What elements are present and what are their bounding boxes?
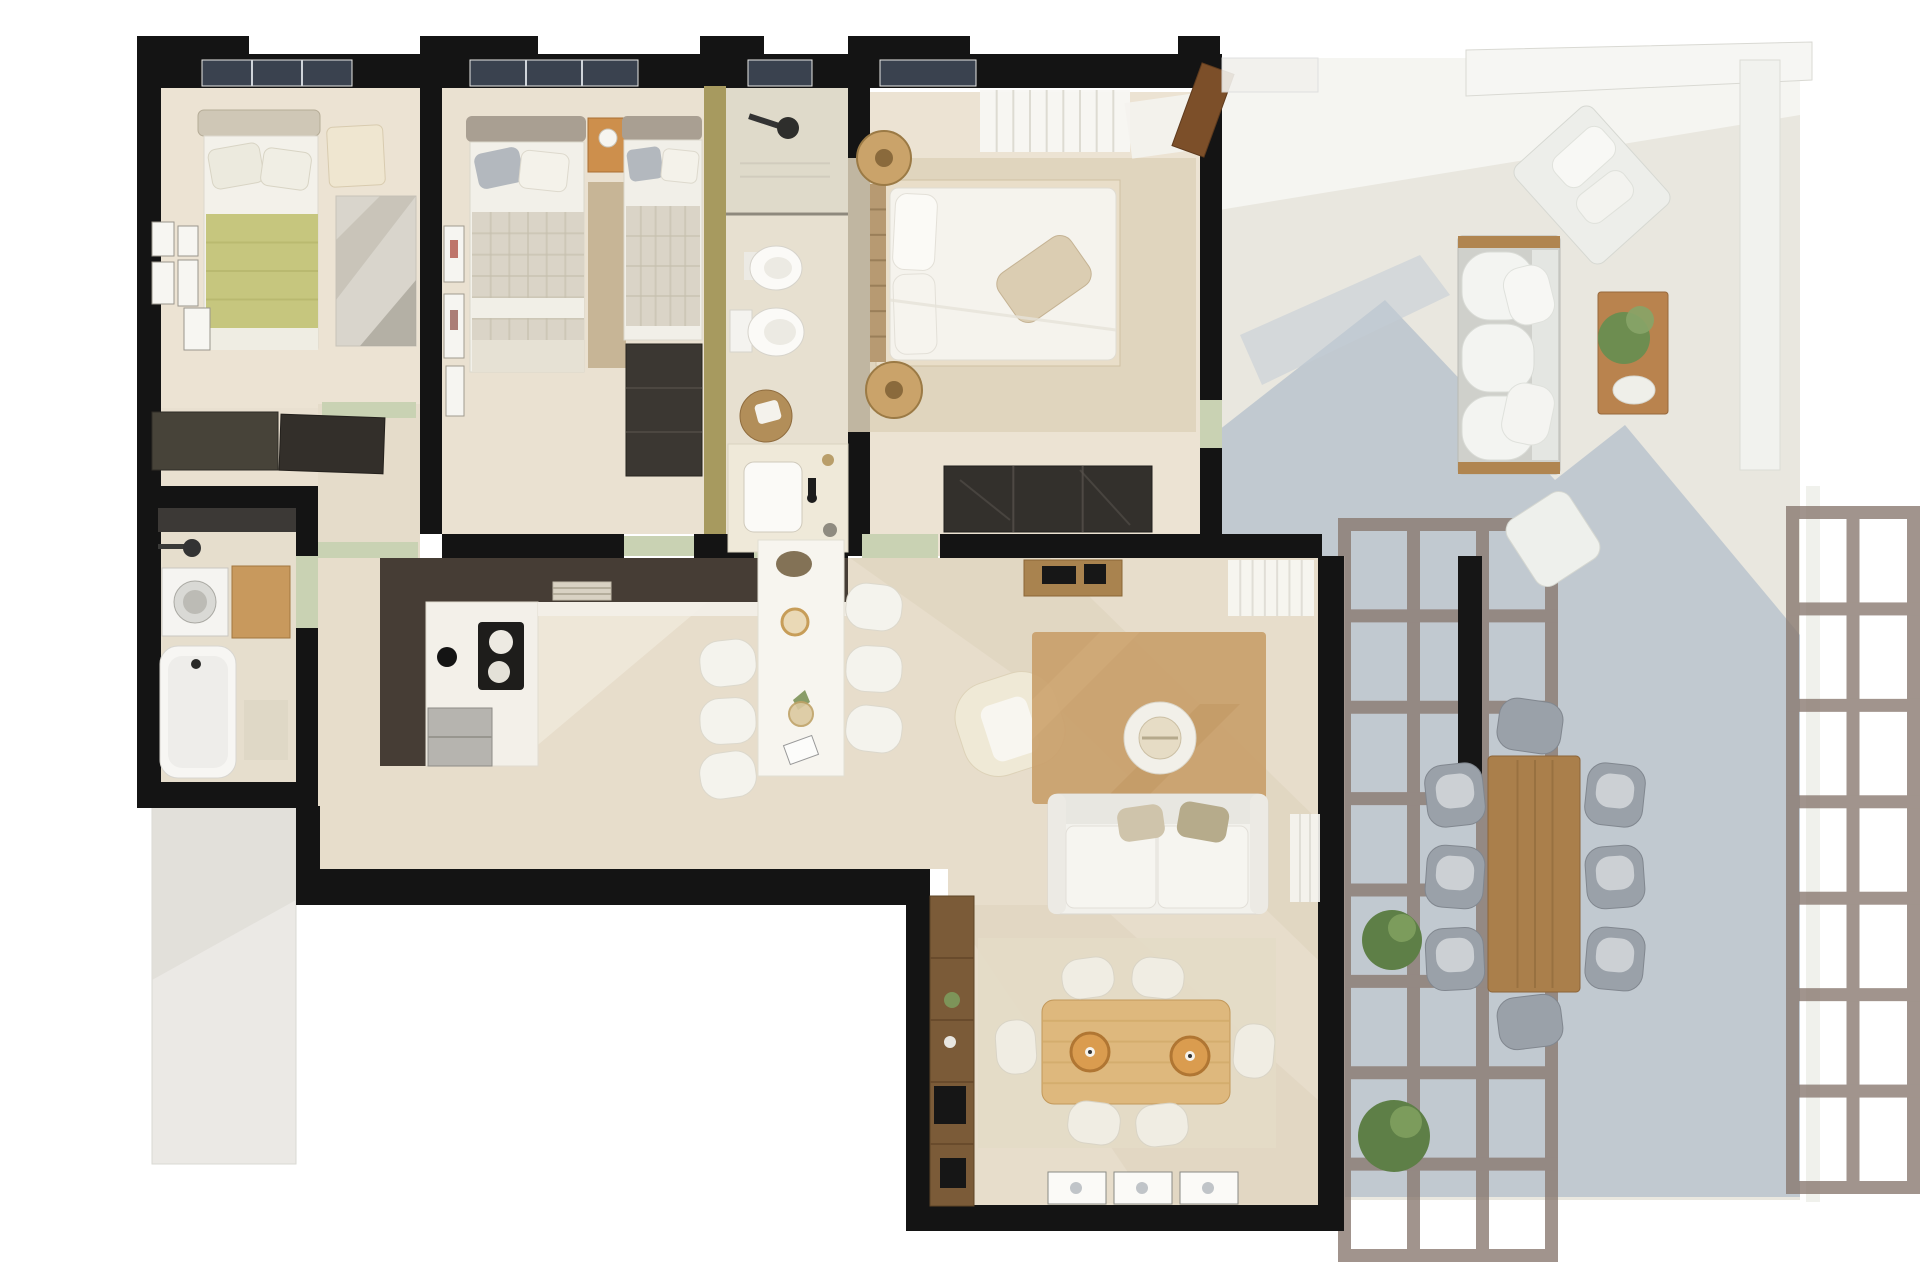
wall-frame	[178, 260, 198, 306]
cooktop-burner	[488, 661, 510, 683]
cabinet-vase	[944, 1036, 956, 1048]
shower-zone	[726, 88, 848, 212]
floor-plan-canvas	[0, 0, 1920, 1280]
vanity-item	[822, 454, 834, 466]
threshold-mat	[624, 536, 694, 556]
outdoor-dining-table-grain-line	[1517, 760, 1519, 988]
bed2-pillow-grey	[626, 146, 664, 182]
terrace-tray	[1613, 376, 1655, 404]
nightstand-lamp	[599, 129, 617, 147]
toilet-bowl-inner	[764, 319, 796, 345]
kitchen-bottom-wall	[296, 869, 930, 905]
master-headboard	[870, 184, 886, 362]
window	[880, 60, 976, 86]
pendant-bulb	[1088, 1050, 1092, 1054]
bed1-blanket-stripes-line	[206, 242, 318, 244]
shower-head	[777, 117, 799, 139]
bed2-wardrobe-shelves-line	[626, 431, 702, 433]
kitchen-top-wall	[442, 534, 624, 558]
console-item	[1084, 564, 1106, 584]
outdoor-chair-cushion	[1595, 936, 1636, 973]
pergola-grid-b-bar	[1786, 892, 1920, 905]
living-right-wall	[1318, 556, 1344, 1208]
dining-chair	[1134, 1101, 1190, 1148]
shower-tray-lines-line	[740, 162, 830, 164]
bed1-dresser	[152, 412, 278, 470]
shower-tray-lines-line	[740, 176, 830, 178]
utility-cabinet	[232, 566, 290, 638]
window	[470, 60, 638, 86]
bath2-tub-faucet	[191, 659, 201, 669]
cabinet-plant	[944, 992, 960, 1008]
bed1-bottom-wall	[137, 486, 318, 508]
island-chair	[699, 697, 757, 746]
outdoor-chair-cushion	[1435, 855, 1475, 892]
window	[748, 60, 812, 86]
bath2-lintel	[158, 508, 296, 532]
vent-grille-lines-line	[553, 587, 611, 589]
outdoor-chair-cushion	[1435, 937, 1475, 973]
bed1-bed2-wall	[420, 54, 442, 534]
master-curtain-folds-line	[1029, 90, 1031, 152]
poster-art	[450, 240, 458, 258]
threshold-mat	[296, 556, 318, 628]
master-headboard-slats-line	[870, 285, 886, 287]
pergola-grid-b-bar	[1786, 1181, 1920, 1194]
living-curtain-folds-line	[1264, 560, 1266, 616]
living-curtain-folds-line	[1288, 560, 1290, 616]
master-curtain-folds-line	[1079, 90, 1081, 152]
master-bedside-center	[875, 149, 893, 167]
living-curtain-folds-line	[1276, 560, 1278, 616]
master-curtain-folds-line	[1062, 90, 1064, 152]
bath2-shower-head	[183, 539, 201, 557]
window-mullions-line	[301, 60, 303, 86]
bed2-plaid-line	[472, 275, 584, 277]
master-headboard-slats-line	[870, 208, 886, 210]
living-curtain-folds-line	[1301, 560, 1303, 616]
dining-cabinet-shelves-line	[930, 957, 974, 959]
dining-cabinet-shelves-line	[930, 1081, 974, 1083]
bed1-blanket-stripes-line	[206, 270, 318, 272]
master-wardrobe	[944, 466, 1152, 532]
living-curtain-folds-line	[1309, 814, 1311, 902]
top-wall-tab	[700, 36, 764, 56]
hall-bath2-wall	[296, 508, 318, 808]
bath2-mat	[244, 700, 288, 760]
pergola-grid-b-bar	[1786, 1085, 1920, 1098]
top-wall-tab	[848, 36, 970, 56]
pergola-grid-b-bar	[1786, 506, 1920, 519]
master-curtain-folds-line	[1112, 90, 1114, 152]
bed1-blanket-stripes-line	[206, 299, 318, 301]
pergola-grid-b-bar	[1786, 699, 1920, 712]
bath2-tub-inner	[168, 656, 228, 768]
outdoor-sofa-cushion	[1462, 324, 1534, 392]
master-headboard-slats-line	[870, 310, 886, 312]
threshold-mat	[862, 534, 938, 558]
master-wardrobe-gaps-line	[1082, 466, 1084, 532]
sofa-pillow-beige	[1116, 803, 1166, 843]
wall-frame	[152, 222, 174, 256]
master-headboard-slats-line	[870, 234, 886, 236]
floor-plan-rendering	[0, 0, 1920, 1280]
threshold-mat	[1200, 400, 1222, 448]
island-plate	[789, 702, 813, 726]
window	[202, 60, 352, 86]
island-chair	[845, 645, 903, 694]
pendant-bulb	[1188, 1054, 1192, 1058]
terrace-shrub-highlight	[1390, 1106, 1422, 1138]
living-curtain-folds-line	[1299, 814, 1301, 902]
bathroom2-bottom-wall	[137, 782, 318, 808]
outdoor-dining-table-grain-line	[1552, 760, 1554, 988]
island-chair	[844, 581, 905, 633]
bidet-bowl	[764, 257, 792, 279]
bed2-right-headboard	[622, 116, 702, 140]
master-pillow	[892, 193, 938, 271]
outdoor-chair-cushion	[1595, 855, 1635, 892]
pergola-grid-a-bar	[1338, 1066, 1558, 1079]
top-wall-tab	[1178, 36, 1220, 56]
threshold-mat	[318, 542, 418, 558]
parapet-right-wall	[1740, 60, 1780, 470]
master-curtain-folds-line	[1012, 90, 1014, 152]
vanity-item	[823, 523, 837, 537]
bed2-wardrobe-shelves-line	[626, 387, 702, 389]
master-headboard-slats-line	[870, 259, 886, 261]
cooktop-burner	[489, 630, 513, 654]
bed1-headboard	[198, 110, 320, 136]
poster	[446, 366, 464, 416]
dining-chair	[994, 1019, 1038, 1076]
terrace-shrub-highlight	[1388, 914, 1416, 942]
bed2-plaid-line	[472, 254, 584, 256]
outdoor-sofa-wood-bottom	[1458, 462, 1560, 474]
bed2-plaid-line	[626, 295, 700, 297]
vanity-faucet-head	[807, 493, 817, 503]
bed1-foot	[206, 328, 318, 350]
dining-cabinet-shelves-line	[930, 1019, 974, 1021]
dining-table-grain-line	[1042, 1082, 1230, 1084]
dining-cabinet-shelves-line	[930, 1143, 974, 1145]
threshold-mat	[322, 402, 416, 418]
kitchen-sink	[437, 647, 457, 667]
master-curtain-folds-line	[996, 90, 998, 152]
cabinet-decor	[940, 1158, 966, 1188]
window-mullions-line	[251, 60, 253, 86]
master-bottom-wall	[940, 534, 1322, 558]
bed2-pillow-white	[518, 150, 570, 193]
bed2-bath1-olive-wall	[704, 86, 726, 556]
bed1-pillow	[207, 142, 265, 190]
living-curtain-folds-line	[1252, 560, 1254, 616]
bed2-plaid-line	[626, 265, 700, 267]
bed2-left-foot	[472, 340, 584, 372]
frame-sketch	[1136, 1182, 1148, 1194]
poster-art	[450, 310, 458, 330]
master-curtain	[980, 90, 1130, 152]
outdoor-chair	[1495, 992, 1565, 1051]
cabinet-decor	[934, 1086, 966, 1124]
outdoor-sofa-wood-top	[1458, 236, 1560, 248]
pergola-grid-a-bar	[1338, 1249, 1558, 1262]
window-mullions-line	[525, 60, 527, 86]
top-wall-tab	[137, 36, 249, 56]
sofa-arm	[1250, 794, 1268, 914]
living-curtain	[1290, 814, 1320, 902]
wall-frame	[178, 226, 198, 256]
bed2-runner-rug	[588, 182, 626, 368]
pergola-grid-b-bar	[1786, 602, 1920, 615]
dining-bottom-wall	[906, 1205, 1344, 1231]
bed1-pillow	[260, 147, 313, 191]
terrace-shrub	[1358, 1100, 1430, 1172]
master-headboard-slats-line	[870, 336, 886, 338]
bed2-plaid-line	[626, 235, 700, 237]
washer-drum-inner	[183, 590, 207, 614]
window-mullions-line	[581, 60, 583, 86]
potted-plant-leaves	[1626, 306, 1654, 334]
dining-chair	[1232, 1022, 1277, 1079]
bed2-plaid-line	[472, 232, 584, 234]
wall-frame	[184, 308, 210, 350]
pergola-grid-a-bar	[1338, 609, 1558, 622]
frame-sketch	[1070, 1182, 1082, 1194]
island-wreath	[776, 551, 812, 577]
console-item	[1042, 566, 1076, 584]
top-wall-tab	[420, 36, 538, 56]
outdoor-dining-table-grain-line	[1534, 760, 1536, 988]
lobby-wall-nub	[296, 806, 320, 869]
master-curtain-folds-line	[1046, 90, 1048, 152]
frame-sketch	[1202, 1182, 1214, 1194]
bed1-pouf	[326, 125, 385, 188]
sofa-arm	[1048, 794, 1066, 914]
master-wardrobe-gaps-line	[1012, 466, 1014, 532]
pergola-grid-b-bar	[1786, 795, 1920, 808]
pergola-grid-b-bar	[1786, 988, 1920, 1001]
bed2-pillow-white	[660, 148, 699, 184]
dining-left-wall	[906, 869, 930, 1209]
kitchen-cabinets-left	[380, 558, 426, 766]
master-terrace-sill	[1222, 58, 1318, 92]
island-plate	[782, 609, 808, 635]
master-right-wall	[1200, 448, 1222, 556]
vent-grille	[553, 582, 611, 600]
master-curtain-folds-line	[1096, 90, 1098, 152]
bed1-dresser	[279, 414, 385, 474]
vent-grille-lines-line	[553, 593, 611, 595]
master-pillow	[893, 273, 938, 354]
master-bedside-center	[885, 381, 903, 399]
bed2-wardrobe	[626, 344, 702, 476]
vanity-sink	[744, 462, 802, 532]
bed2-left-whiteband	[472, 298, 584, 318]
wall-frame	[152, 262, 174, 304]
living-curtain-folds-line	[1239, 560, 1241, 616]
bed2-left-headboard	[466, 116, 586, 142]
dining-table-grain-line	[1042, 1020, 1230, 1022]
island-chair	[698, 637, 759, 689]
outdoor-chair	[1495, 696, 1566, 756]
